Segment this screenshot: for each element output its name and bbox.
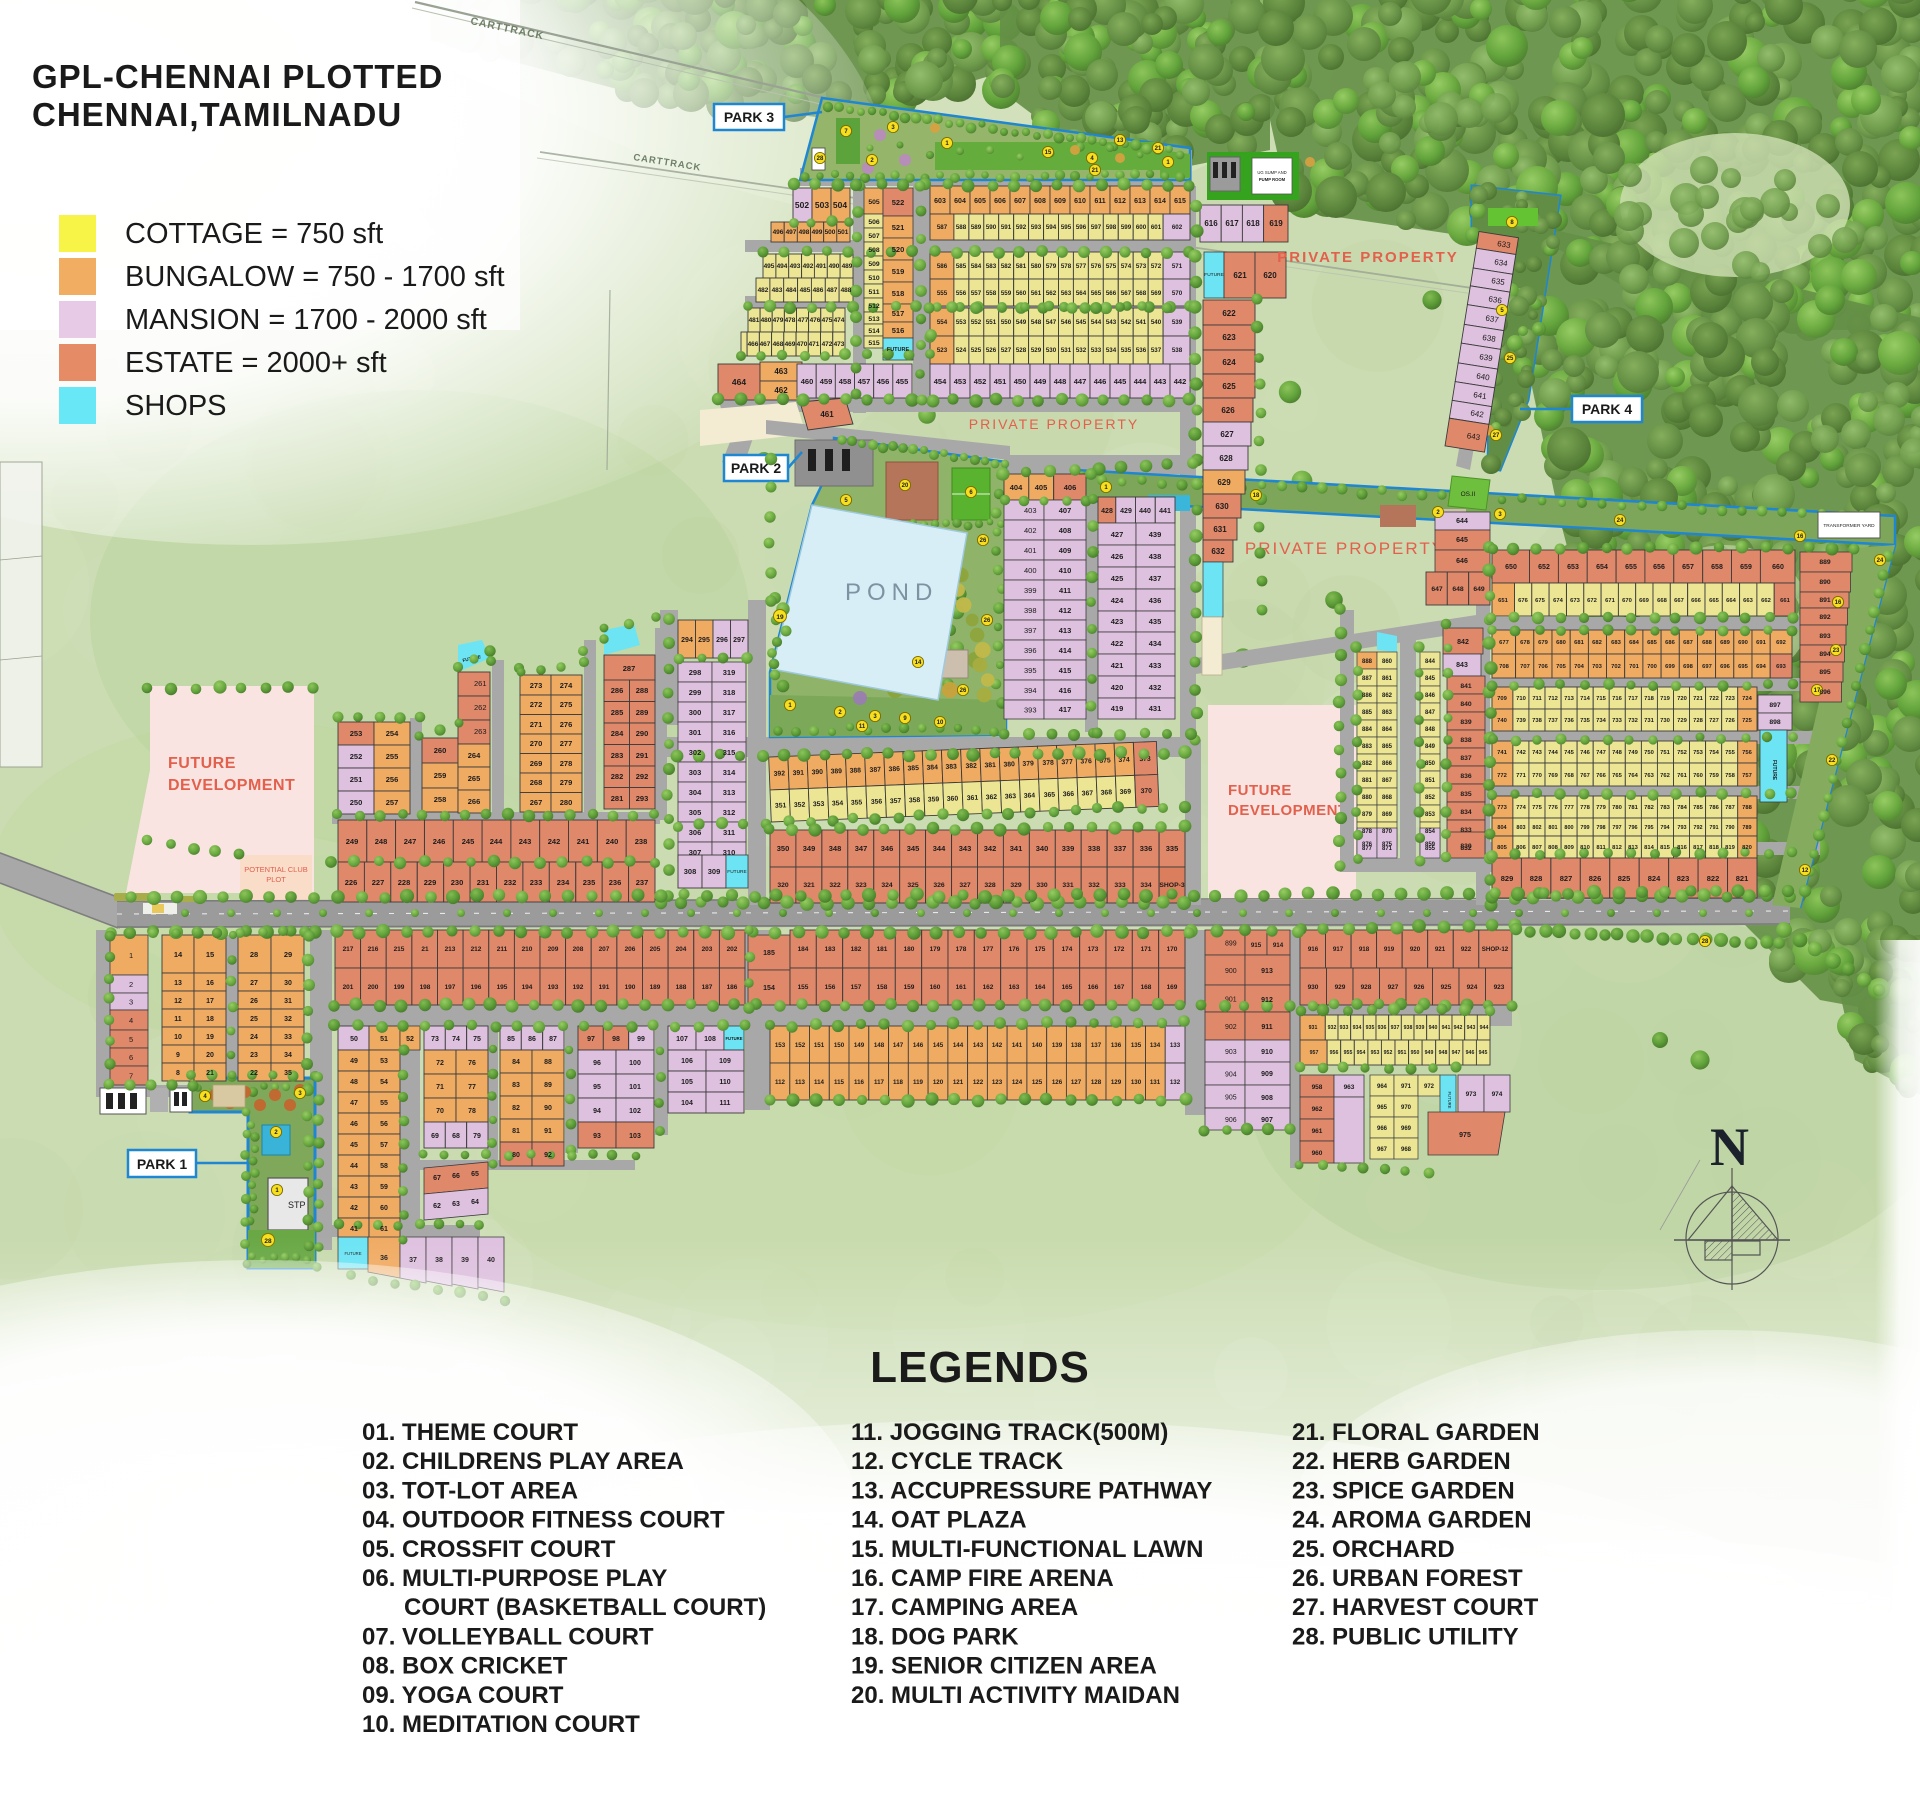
svg-text:476: 476: [810, 317, 821, 324]
svg-text:334: 334: [1140, 882, 1152, 889]
svg-text:319: 319: [723, 668, 736, 677]
svg-text:518: 518: [892, 289, 905, 298]
svg-text:620: 620: [1263, 271, 1277, 280]
svg-text:485: 485: [800, 287, 811, 294]
svg-text:291: 291: [636, 751, 649, 760]
svg-text:PARK 4: PARK 4: [1582, 401, 1633, 417]
svg-text:176: 176: [1009, 946, 1020, 953]
svg-text:944: 944: [1480, 1025, 1489, 1031]
svg-text:320: 320: [777, 882, 789, 889]
svg-text:145: 145: [933, 1042, 944, 1049]
svg-text:707: 707: [1520, 664, 1530, 670]
svg-text:49: 49: [350, 1058, 358, 1065]
svg-text:16: 16: [1797, 534, 1804, 540]
svg-text:881: 881: [1362, 778, 1373, 784]
svg-text:626: 626: [1221, 406, 1235, 415]
svg-text:21. FLORAL GARDEN: 21. FLORAL GARDEN: [1292, 1419, 1540, 1446]
svg-text:940: 940: [1429, 1025, 1438, 1031]
svg-text:132: 132: [1170, 1079, 1181, 1086]
svg-text:SHOPS: SHOPS: [125, 390, 227, 422]
svg-text:517: 517: [892, 309, 905, 318]
svg-text:192: 192: [573, 984, 584, 991]
svg-text:422: 422: [1111, 639, 1124, 648]
svg-text:411: 411: [1059, 586, 1071, 595]
svg-text:SHOP-12: SHOP-12: [1482, 946, 1509, 953]
svg-text:307: 307: [689, 848, 702, 857]
svg-text:360: 360: [947, 795, 959, 802]
svg-text:834: 834: [1460, 809, 1472, 816]
svg-text:719: 719: [1660, 696, 1670, 702]
svg-text:346: 346: [881, 844, 894, 853]
svg-text:23: 23: [250, 1052, 258, 1059]
svg-text:933: 933: [1340, 1025, 1349, 1031]
svg-text:310: 310: [723, 848, 736, 857]
svg-text:PRIVATE PROPERTY: PRIVATE PROPERTY: [1277, 249, 1458, 266]
svg-text:28: 28: [817, 156, 824, 162]
svg-text:14: 14: [915, 660, 922, 666]
svg-text:140: 140: [1032, 1042, 1043, 1049]
svg-text:448: 448: [1054, 377, 1067, 386]
svg-text:468: 468: [773, 341, 784, 348]
svg-text:349: 349: [803, 844, 816, 853]
svg-text:160: 160: [930, 984, 941, 991]
svg-text:113: 113: [795, 1079, 806, 1086]
svg-text:233: 233: [530, 878, 543, 887]
svg-text:397: 397: [1024, 626, 1037, 635]
svg-text:830: 830: [1460, 843, 1472, 850]
svg-text:FUTURE: FUTURE: [727, 869, 746, 875]
svg-text:670: 670: [1622, 598, 1632, 604]
svg-text:9: 9: [176, 1052, 180, 1059]
svg-text:391: 391: [793, 770, 805, 777]
svg-text:23: 23: [1833, 648, 1840, 654]
svg-text:632: 632: [1211, 547, 1225, 556]
svg-text:399: 399: [1024, 586, 1037, 595]
svg-text:434: 434: [1149, 639, 1162, 648]
svg-text:559: 559: [1001, 290, 1012, 297]
svg-text:PUMP ROOM: PUMP ROOM: [1259, 177, 1286, 182]
svg-text:968: 968: [1401, 1147, 1412, 1153]
svg-text:252: 252: [350, 752, 363, 761]
svg-text:588: 588: [956, 224, 967, 231]
svg-text:575: 575: [1106, 263, 1117, 270]
svg-text:725: 725: [1742, 718, 1752, 724]
svg-text:315: 315: [723, 748, 736, 757]
svg-text:07. VOLLEYBALL COURT: 07. VOLLEYBALL COURT: [362, 1623, 654, 1650]
svg-text:648: 648: [1452, 586, 1464, 593]
svg-text:461: 461: [820, 410, 834, 419]
svg-text:739: 739: [1516, 718, 1526, 724]
svg-text:582: 582: [1001, 263, 1012, 270]
svg-text:943: 943: [1467, 1025, 1476, 1031]
svg-text:244: 244: [490, 837, 503, 846]
svg-text:545: 545: [1076, 319, 1087, 326]
svg-text:32: 32: [284, 1016, 292, 1023]
svg-text:753: 753: [1693, 750, 1703, 756]
svg-text:776: 776: [1548, 805, 1558, 811]
svg-text:965: 965: [1377, 1105, 1388, 1111]
svg-text:947: 947: [1452, 1050, 1461, 1056]
svg-text:19: 19: [776, 614, 784, 621]
svg-text:142: 142: [992, 1042, 1003, 1049]
svg-text:FUTURE: FUTURE: [726, 1036, 743, 1041]
svg-text:727: 727: [1709, 718, 1719, 724]
svg-text:772: 772: [1497, 773, 1507, 779]
svg-text:533: 533: [1091, 347, 1102, 354]
svg-text:186: 186: [727, 984, 738, 991]
svg-text:687: 687: [1683, 640, 1693, 646]
svg-text:852: 852: [1425, 795, 1436, 801]
svg-text:884: 884: [1362, 727, 1373, 733]
svg-text:44: 44: [350, 1163, 358, 1170]
svg-text:260: 260: [434, 746, 447, 755]
svg-text:766: 766: [1596, 773, 1606, 779]
svg-text:263: 263: [474, 727, 487, 736]
svg-text:488: 488: [841, 287, 852, 294]
svg-text:878: 878: [1362, 829, 1373, 835]
svg-text:836: 836: [1460, 773, 1472, 780]
svg-text:25. ORCHARD: 25. ORCHARD: [1292, 1536, 1455, 1563]
svg-text:141: 141: [1012, 1042, 1023, 1049]
svg-text:POTENTIAL CLUB: POTENTIAL CLUB: [244, 865, 308, 874]
svg-text:603: 603: [934, 198, 946, 205]
svg-text:282: 282: [611, 772, 624, 781]
svg-text:774: 774: [1516, 805, 1526, 811]
svg-text:352: 352: [794, 802, 806, 809]
svg-text:782: 782: [1644, 805, 1654, 811]
svg-text:478: 478: [785, 317, 796, 324]
svg-text:152: 152: [795, 1042, 806, 1049]
svg-text:611: 611: [1094, 198, 1105, 205]
svg-text:737: 737: [1548, 718, 1558, 724]
svg-text:403: 403: [1024, 506, 1037, 515]
svg-text:479: 479: [773, 317, 784, 324]
svg-text:03. TOT-LOT AREA: 03. TOT-LOT AREA: [362, 1477, 578, 1504]
svg-text:146: 146: [913, 1042, 924, 1049]
svg-text:528: 528: [1016, 347, 1027, 354]
svg-text:911: 911: [1261, 1024, 1272, 1031]
svg-text:585: 585: [956, 263, 967, 270]
svg-text:800: 800: [1564, 825, 1573, 831]
svg-text:513: 513: [868, 316, 880, 323]
svg-text:652: 652: [1538, 564, 1550, 571]
svg-text:697: 697: [1702, 664, 1712, 670]
svg-text:117: 117: [874, 1079, 885, 1086]
svg-text:47: 47: [350, 1100, 358, 1107]
svg-text:607: 607: [1014, 198, 1026, 205]
svg-text:292: 292: [636, 772, 649, 781]
svg-text:188: 188: [676, 984, 687, 991]
svg-text:703: 703: [1592, 664, 1602, 670]
svg-text:240: 240: [606, 837, 619, 846]
svg-text:794: 794: [1660, 825, 1670, 831]
svg-text:FUTURE: FUTURE: [1447, 1092, 1452, 1109]
svg-text:172: 172: [1114, 946, 1125, 953]
svg-text:888: 888: [1362, 659, 1373, 665]
svg-text:245: 245: [462, 837, 475, 846]
svg-text:963: 963: [1344, 1084, 1355, 1091]
svg-text:PARK 3: PARK 3: [724, 109, 775, 125]
svg-text:955: 955: [1344, 1050, 1353, 1056]
svg-text:52: 52: [406, 1036, 414, 1043]
svg-text:290: 290: [636, 729, 649, 738]
svg-text:583: 583: [986, 263, 997, 270]
svg-text:882: 882: [1362, 761, 1373, 767]
svg-text:537: 537: [1151, 347, 1162, 354]
svg-text:169: 169: [1167, 984, 1178, 991]
svg-text:125: 125: [1032, 1079, 1043, 1086]
svg-text:551: 551: [986, 319, 997, 326]
svg-text:726: 726: [1725, 718, 1735, 724]
svg-text:734: 734: [1596, 718, 1606, 724]
svg-text:851: 851: [1425, 778, 1436, 784]
svg-text:671: 671: [1605, 598, 1615, 604]
svg-text:826: 826: [1589, 874, 1602, 883]
svg-text:121: 121: [953, 1079, 964, 1086]
svg-text:FUTURE: FUTURE: [1204, 272, 1223, 278]
svg-text:278: 278: [560, 759, 573, 768]
svg-text:199: 199: [394, 984, 405, 991]
svg-text:269: 269: [530, 759, 543, 768]
svg-text:28: 28: [1702, 939, 1709, 945]
svg-text:24: 24: [1877, 558, 1884, 564]
svg-text:698: 698: [1683, 664, 1693, 670]
svg-text:210: 210: [522, 946, 533, 953]
svg-text:896: 896: [1819, 689, 1831, 696]
svg-text:452: 452: [974, 377, 987, 386]
svg-text:GPL-CHENNAI PLOTTED: GPL-CHENNAI PLOTTED: [32, 58, 443, 95]
svg-text:927: 927: [1388, 984, 1399, 991]
svg-text:438: 438: [1149, 552, 1162, 561]
svg-text:540: 540: [1151, 319, 1162, 326]
svg-text:317: 317: [723, 708, 736, 717]
svg-text:523: 523: [937, 347, 948, 354]
svg-text:253: 253: [350, 729, 363, 738]
svg-text:956: 956: [1330, 1050, 1339, 1056]
svg-text:366: 366: [1063, 791, 1075, 798]
svg-text:386: 386: [888, 766, 900, 773]
svg-text:514: 514: [868, 328, 880, 335]
svg-text:586: 586: [937, 263, 948, 270]
svg-text:165: 165: [1062, 984, 1073, 991]
svg-text:343: 343: [959, 844, 972, 853]
svg-text:85: 85: [507, 1036, 515, 1043]
svg-text:202: 202: [727, 946, 738, 953]
svg-text:272: 272: [530, 700, 543, 709]
svg-text:10. MEDITATION COURT: 10. MEDITATION COURT: [362, 1711, 640, 1738]
svg-text:595: 595: [1061, 224, 1072, 231]
svg-text:661: 661: [1780, 598, 1790, 604]
svg-text:90: 90: [544, 1105, 552, 1112]
svg-text:755: 755: [1725, 750, 1735, 756]
svg-text:962: 962: [1312, 1106, 1323, 1113]
svg-text:672: 672: [1587, 598, 1597, 604]
svg-text:440: 440: [1139, 508, 1151, 515]
svg-text:745: 745: [1564, 750, 1574, 756]
svg-text:11: 11: [174, 1016, 182, 1023]
svg-text:164: 164: [1035, 984, 1046, 991]
svg-text:446: 446: [1094, 377, 1107, 386]
svg-text:420: 420: [1111, 683, 1124, 692]
svg-text:05. CROSSFIT COURT: 05. CROSSFIT COURT: [362, 1536, 616, 1563]
svg-text:394: 394: [1024, 686, 1037, 695]
svg-text:134: 134: [1150, 1042, 1161, 1049]
svg-text:194: 194: [522, 984, 533, 991]
svg-text:546: 546: [1061, 319, 1072, 326]
svg-text:170: 170: [1167, 946, 1178, 953]
svg-text:63: 63: [452, 1201, 460, 1208]
svg-text:26. URBAN FOREST: 26. URBAN FOREST: [1292, 1565, 1523, 1592]
svg-text:300: 300: [689, 708, 702, 717]
svg-text:455: 455: [896, 377, 909, 386]
svg-text:763: 763: [1644, 773, 1654, 779]
svg-text:STP: STP: [288, 1200, 306, 1210]
svg-text:295: 295: [698, 637, 710, 644]
svg-text:482: 482: [758, 287, 769, 294]
svg-text:656: 656: [1653, 564, 1665, 571]
svg-text:623: 623: [1222, 333, 1236, 342]
svg-text:27: 27: [1493, 433, 1500, 439]
svg-text:453: 453: [954, 377, 967, 386]
svg-text:100: 100: [629, 1060, 641, 1067]
svg-text:294: 294: [681, 637, 693, 644]
svg-text:843: 843: [1456, 662, 1468, 669]
svg-text:690: 690: [1738, 640, 1748, 646]
svg-text:866: 866: [1382, 761, 1393, 767]
svg-text:504: 504: [833, 200, 847, 210]
svg-text:805: 805: [1497, 845, 1507, 851]
svg-text:704: 704: [1574, 664, 1584, 670]
svg-text:779: 779: [1596, 805, 1606, 811]
svg-text:500: 500: [825, 229, 836, 236]
svg-text:654: 654: [1596, 564, 1608, 571]
svg-text:621: 621: [1233, 271, 1247, 280]
svg-text:723: 723: [1725, 696, 1735, 702]
svg-text:905: 905: [1225, 1095, 1237, 1102]
svg-text:115: 115: [834, 1079, 845, 1086]
svg-text:325: 325: [907, 882, 919, 889]
svg-text:256: 256: [386, 775, 399, 784]
svg-text:111: 111: [720, 1100, 731, 1107]
svg-text:187: 187: [702, 984, 713, 991]
svg-text:108: 108: [704, 1036, 716, 1043]
svg-text:324: 324: [881, 882, 893, 889]
svg-text:80: 80: [512, 1152, 520, 1159]
svg-text:91: 91: [544, 1128, 552, 1135]
svg-text:155: 155: [798, 984, 809, 991]
svg-text:970: 970: [1401, 1105, 1412, 1111]
svg-text:364: 364: [1024, 792, 1036, 799]
svg-text:700: 700: [1647, 664, 1657, 670]
svg-text:370: 370: [1141, 788, 1153, 795]
svg-text:274: 274: [560, 681, 573, 690]
svg-text:206: 206: [625, 946, 636, 953]
svg-text:26: 26: [250, 998, 258, 1005]
svg-text:123: 123: [992, 1079, 1003, 1086]
svg-text:480: 480: [761, 317, 772, 324]
svg-text:427: 427: [1111, 530, 1124, 539]
svg-text:711: 711: [1532, 696, 1542, 702]
svg-text:928: 928: [1361, 984, 1372, 991]
svg-text:692: 692: [1776, 640, 1786, 646]
svg-text:904: 904: [1225, 1072, 1237, 1079]
svg-text:731: 731: [1644, 718, 1654, 724]
svg-text:251: 251: [350, 775, 363, 784]
svg-text:806: 806: [1516, 845, 1526, 851]
svg-text:327: 327: [959, 882, 971, 889]
svg-text:442: 442: [1174, 377, 1187, 386]
svg-text:86: 86: [528, 1036, 536, 1043]
svg-text:556: 556: [956, 290, 967, 297]
svg-text:287: 287: [623, 664, 636, 673]
svg-text:189: 189: [650, 984, 661, 991]
svg-text:741: 741: [1497, 750, 1507, 756]
svg-text:573: 573: [1136, 263, 1147, 270]
svg-text:757: 757: [1742, 773, 1752, 779]
svg-text:195: 195: [497, 984, 508, 991]
svg-text:508: 508: [868, 247, 880, 254]
svg-text:58: 58: [380, 1163, 388, 1170]
svg-text:355: 355: [851, 799, 863, 806]
svg-text:544: 544: [1091, 319, 1102, 326]
svg-text:338: 338: [1088, 844, 1101, 853]
svg-text:475: 475: [822, 317, 833, 324]
svg-text:12: 12: [174, 998, 182, 1005]
svg-text:156: 156: [825, 984, 836, 991]
svg-text:133: 133: [1170, 1042, 1181, 1049]
svg-text:353: 353: [813, 801, 825, 808]
svg-text:578: 578: [1061, 263, 1072, 270]
svg-text:COURT (BASKETBALL COURT): COURT (BASKETBALL COURT): [404, 1594, 766, 1621]
svg-text:456: 456: [877, 377, 890, 386]
svg-text:14. OAT PLAZA: 14. OAT PLAZA: [851, 1507, 1027, 1534]
svg-text:211: 211: [497, 946, 508, 953]
svg-text:577: 577: [1076, 263, 1087, 270]
svg-text:819: 819: [1725, 845, 1735, 851]
svg-text:180: 180: [904, 946, 915, 953]
svg-text:191: 191: [599, 984, 610, 991]
svg-text:305: 305: [689, 808, 702, 817]
svg-text:DEVELOPMENT: DEVELOPMENT: [1228, 802, 1348, 819]
svg-text:51: 51: [380, 1036, 388, 1043]
svg-text:879: 879: [1362, 812, 1373, 818]
svg-text:618: 618: [1246, 219, 1260, 228]
svg-text:651: 651: [1498, 598, 1508, 604]
svg-text:358: 358: [909, 797, 921, 804]
svg-text:79: 79: [473, 1133, 481, 1140]
svg-text:55: 55: [380, 1100, 388, 1107]
svg-text:363: 363: [1005, 793, 1017, 800]
svg-text:273: 273: [530, 681, 543, 690]
svg-text:153: 153: [775, 1042, 786, 1049]
svg-text:657: 657: [1682, 564, 1694, 571]
svg-text:28: 28: [250, 950, 258, 959]
svg-text:2: 2: [129, 980, 133, 989]
svg-text:270: 270: [530, 739, 543, 748]
svg-text:137: 137: [1091, 1042, 1102, 1049]
svg-text:235: 235: [583, 878, 596, 887]
svg-text:617: 617: [1225, 219, 1239, 228]
svg-text:129: 129: [1111, 1079, 1122, 1086]
svg-text:247: 247: [404, 837, 417, 846]
svg-text:46: 46: [350, 1121, 358, 1128]
svg-text:426: 426: [1111, 552, 1124, 561]
svg-text:417: 417: [1059, 705, 1072, 714]
svg-text:72: 72: [436, 1060, 444, 1067]
svg-text:432: 432: [1149, 683, 1162, 692]
svg-text:182: 182: [851, 946, 862, 953]
svg-text:953: 953: [1371, 1050, 1380, 1056]
